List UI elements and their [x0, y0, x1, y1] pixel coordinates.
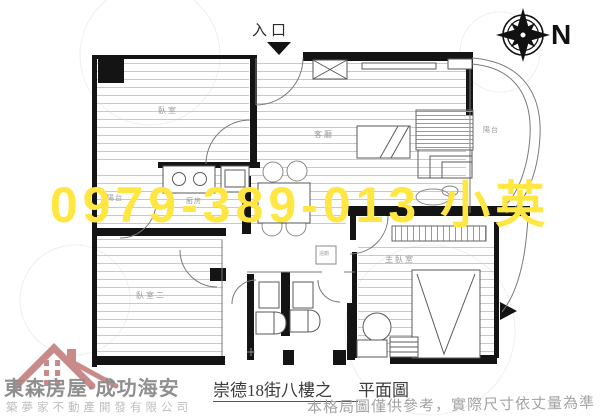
- room-label-bedroom1: 臥室: [158, 105, 178, 116]
- toilet: [256, 312, 286, 334]
- master-bed: [412, 270, 480, 358]
- bath-sink: [259, 282, 279, 308]
- room-label-bathroom: 浴廁: [319, 250, 329, 257]
- entrance-arrow-icon: [267, 42, 291, 55]
- room-label-master-bedroom: 主臥室: [385, 254, 415, 265]
- room-label-bedroom2: 臥室二: [136, 290, 166, 301]
- tv-cabinet: [357, 126, 410, 158]
- phone-watermark: 0979-389-013 小英: [0, 165, 600, 237]
- bed-small: [416, 110, 473, 150]
- compass-north-label: N: [551, 19, 571, 51]
- bath-sink: [293, 282, 313, 308]
- floor-plan-page: 入口 N 臥室 客廳 廚房 陽台 陽台 臥室二 主臥室 浴廁 0979-389-…: [0, 0, 600, 420]
- compass-icon: [496, 8, 550, 62]
- entrance-label: 入口: [252, 19, 290, 40]
- toilet: [290, 310, 320, 332]
- room-label-balcony-right: 陽台: [483, 125, 499, 135]
- stool: [363, 313, 391, 341]
- brand-name: 東森房屋·成功海安: [4, 372, 180, 401]
- company-name: 築夢家不動產開發有限公司: [6, 399, 192, 415]
- room-label-living: 客廳: [314, 129, 334, 140]
